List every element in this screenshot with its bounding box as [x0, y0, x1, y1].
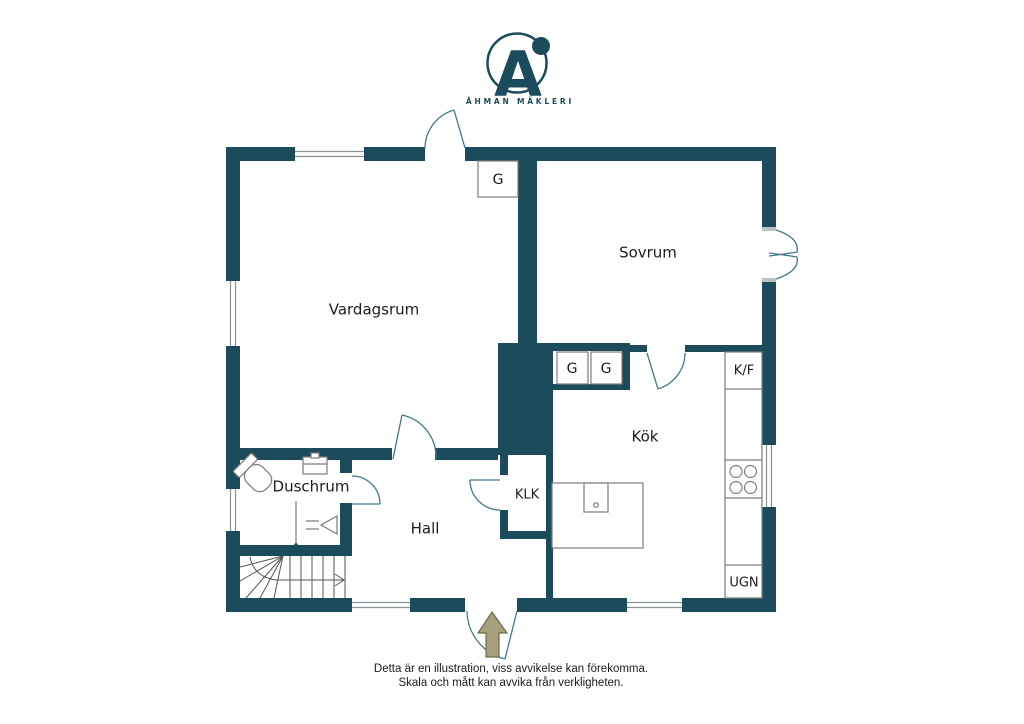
room-label-kok: Kök [632, 430, 659, 445]
staircase [240, 556, 345, 598]
shower-icon [294, 501, 337, 547]
logo-dot-icon [532, 37, 550, 55]
door-arc-klk [470, 480, 500, 510]
wardrobe-label-2: G [567, 362, 578, 376]
fridge-freezer-label: K/F [734, 365, 754, 378]
room-label-klk: KLK [515, 489, 539, 502]
room-label-duschrum: Duschrum [273, 480, 350, 495]
door-arc-vardagsrum-hall [393, 415, 436, 459]
wardrobe-label-1: G [493, 173, 504, 187]
disclaimer-line-1: Detta är en illustration, viss avvikelse… [374, 663, 648, 675]
entrance-arrow-icon [478, 612, 507, 657]
oven-label: UGN [729, 577, 758, 590]
room-label-hall: Hall [411, 522, 440, 537]
room-label-sovrum: Sovrum [619, 246, 677, 261]
door-arc-vardagsrum-exterior [425, 110, 465, 148]
floor-plan-page: A [0, 0, 1024, 724]
disclaimer-line-2: Skala och mått kan avvika från verklighe… [398, 677, 623, 689]
sink-icon [584, 483, 608, 512]
walls [226, 147, 776, 612]
room-label-vardagsrum: Vardagsrum [329, 303, 420, 318]
floor-plan-drawing: A [0, 0, 1024, 724]
wardrobe-label-3: G [601, 362, 612, 376]
door-arc-sovrum-kok [647, 353, 685, 389]
brand-name: ÅHMAN MÄKLERI [466, 97, 574, 106]
door-arc-duschrum [352, 476, 380, 504]
